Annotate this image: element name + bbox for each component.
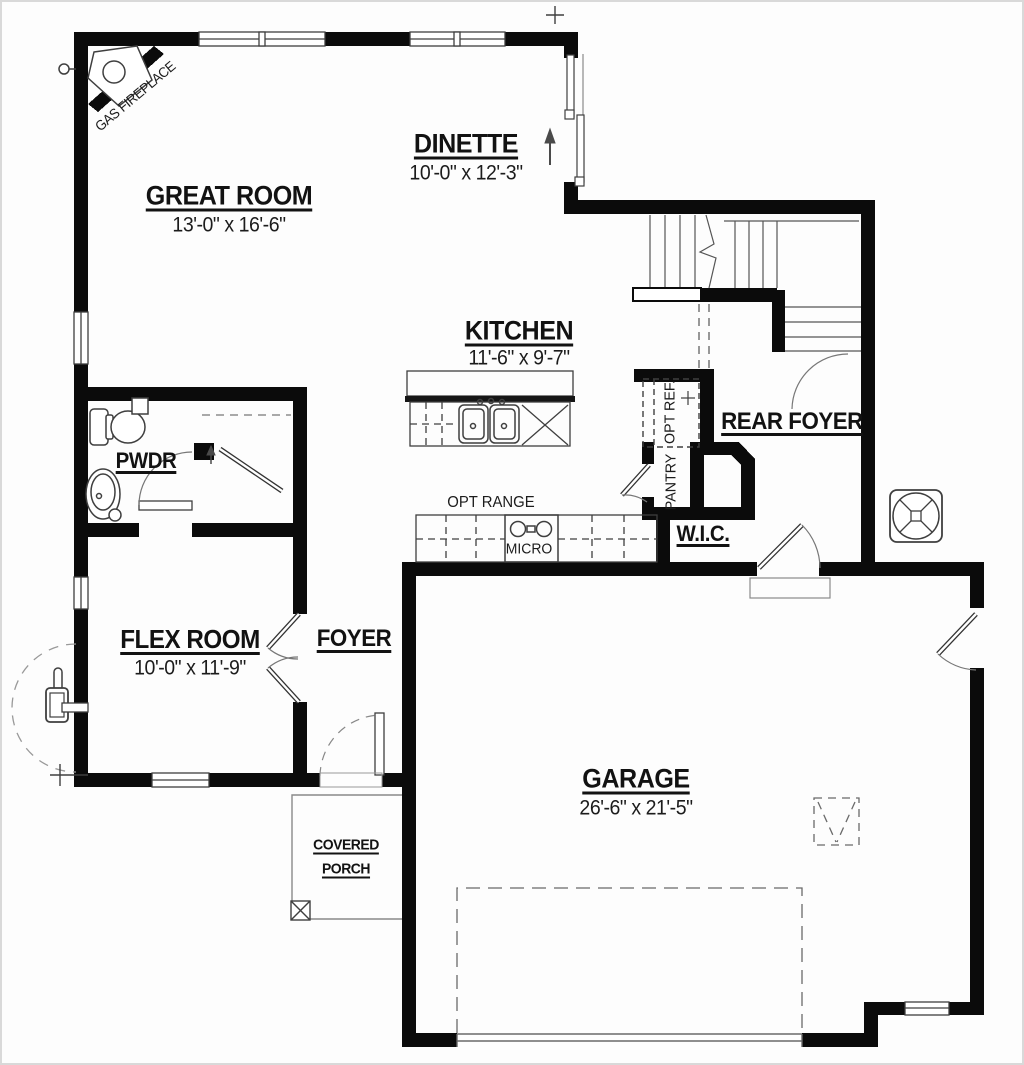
garage-door xyxy=(457,888,802,1047)
foyer-label: FOYER xyxy=(317,627,392,651)
dishwasher-x xyxy=(522,405,568,445)
window-dinette-top xyxy=(410,32,505,46)
window-flex-bottom xyxy=(152,773,209,787)
closet-door xyxy=(202,415,291,491)
window-great-room-top xyxy=(199,32,325,46)
dinette-label: DINETTE xyxy=(414,131,518,158)
fan-symbol xyxy=(890,490,942,542)
rear-foyer-label: REAR FOYER xyxy=(721,410,863,434)
stair-landing-edge xyxy=(633,288,701,301)
wall-niche xyxy=(132,398,148,414)
flex-room-label: FLEX ROOM xyxy=(120,626,260,652)
pedestal-sink xyxy=(86,469,121,521)
kitchen-sink xyxy=(459,399,519,444)
micro-label: MICRO xyxy=(506,542,553,557)
front-door xyxy=(320,713,384,787)
floor-plan: GREAT ROOM 13'-0" x 16'-6" DINETTE 10'-0… xyxy=(0,0,1024,1065)
hose-bib-symbol xyxy=(59,64,76,74)
opt-range-label: OPT RANGE xyxy=(447,495,534,511)
kitchen-label: KITCHEN xyxy=(465,318,573,345)
door-swing-arrow xyxy=(545,129,555,165)
opt-ref-label: OPT REF. xyxy=(663,380,678,444)
sliding-door-dinette xyxy=(565,54,584,186)
window-flex-left xyxy=(74,577,88,609)
french-doors-flex xyxy=(268,614,299,702)
garage-label: GARAGE xyxy=(582,766,689,793)
great-room-label: GREAT ROOM xyxy=(146,183,312,210)
garage-door-track xyxy=(457,888,802,1033)
top-cross xyxy=(546,6,564,24)
covered-porch-label-line2: PORCH xyxy=(322,862,370,877)
kitchen-island xyxy=(405,371,575,446)
stair-break-line xyxy=(700,215,716,288)
wic-label: W.I.C. xyxy=(677,523,730,545)
service-door xyxy=(938,614,976,670)
covered-porch-outline xyxy=(291,795,402,920)
centerline-cross xyxy=(681,391,695,405)
basement-door-swing xyxy=(792,354,848,409)
garage-dims: 26'-6" x 21'-5" xyxy=(579,798,692,819)
garage-step xyxy=(750,578,830,598)
pwdr-label: PWDR xyxy=(116,450,177,472)
garage-entry-door xyxy=(750,525,830,598)
window-garage-right xyxy=(905,1002,949,1015)
doors xyxy=(139,415,976,787)
flex-room-dims: 10'-0" x 11'-9" xyxy=(134,658,246,679)
pantry-door xyxy=(622,465,649,502)
covered-porch-label-line1: COVERED xyxy=(313,838,379,853)
great-room-dims: 13'-0" x 16'-6" xyxy=(172,215,285,236)
pantry-label: PANTRY xyxy=(664,454,679,510)
front-threshold xyxy=(320,773,382,787)
dinette-dims: 10'-0" x 12'-3" xyxy=(409,163,522,184)
attic-access-hatch xyxy=(814,798,859,845)
porch-post xyxy=(291,901,310,920)
kitchen-dims: 11'-6" x 9'-7" xyxy=(468,348,569,369)
window-great-room-left xyxy=(74,312,88,364)
